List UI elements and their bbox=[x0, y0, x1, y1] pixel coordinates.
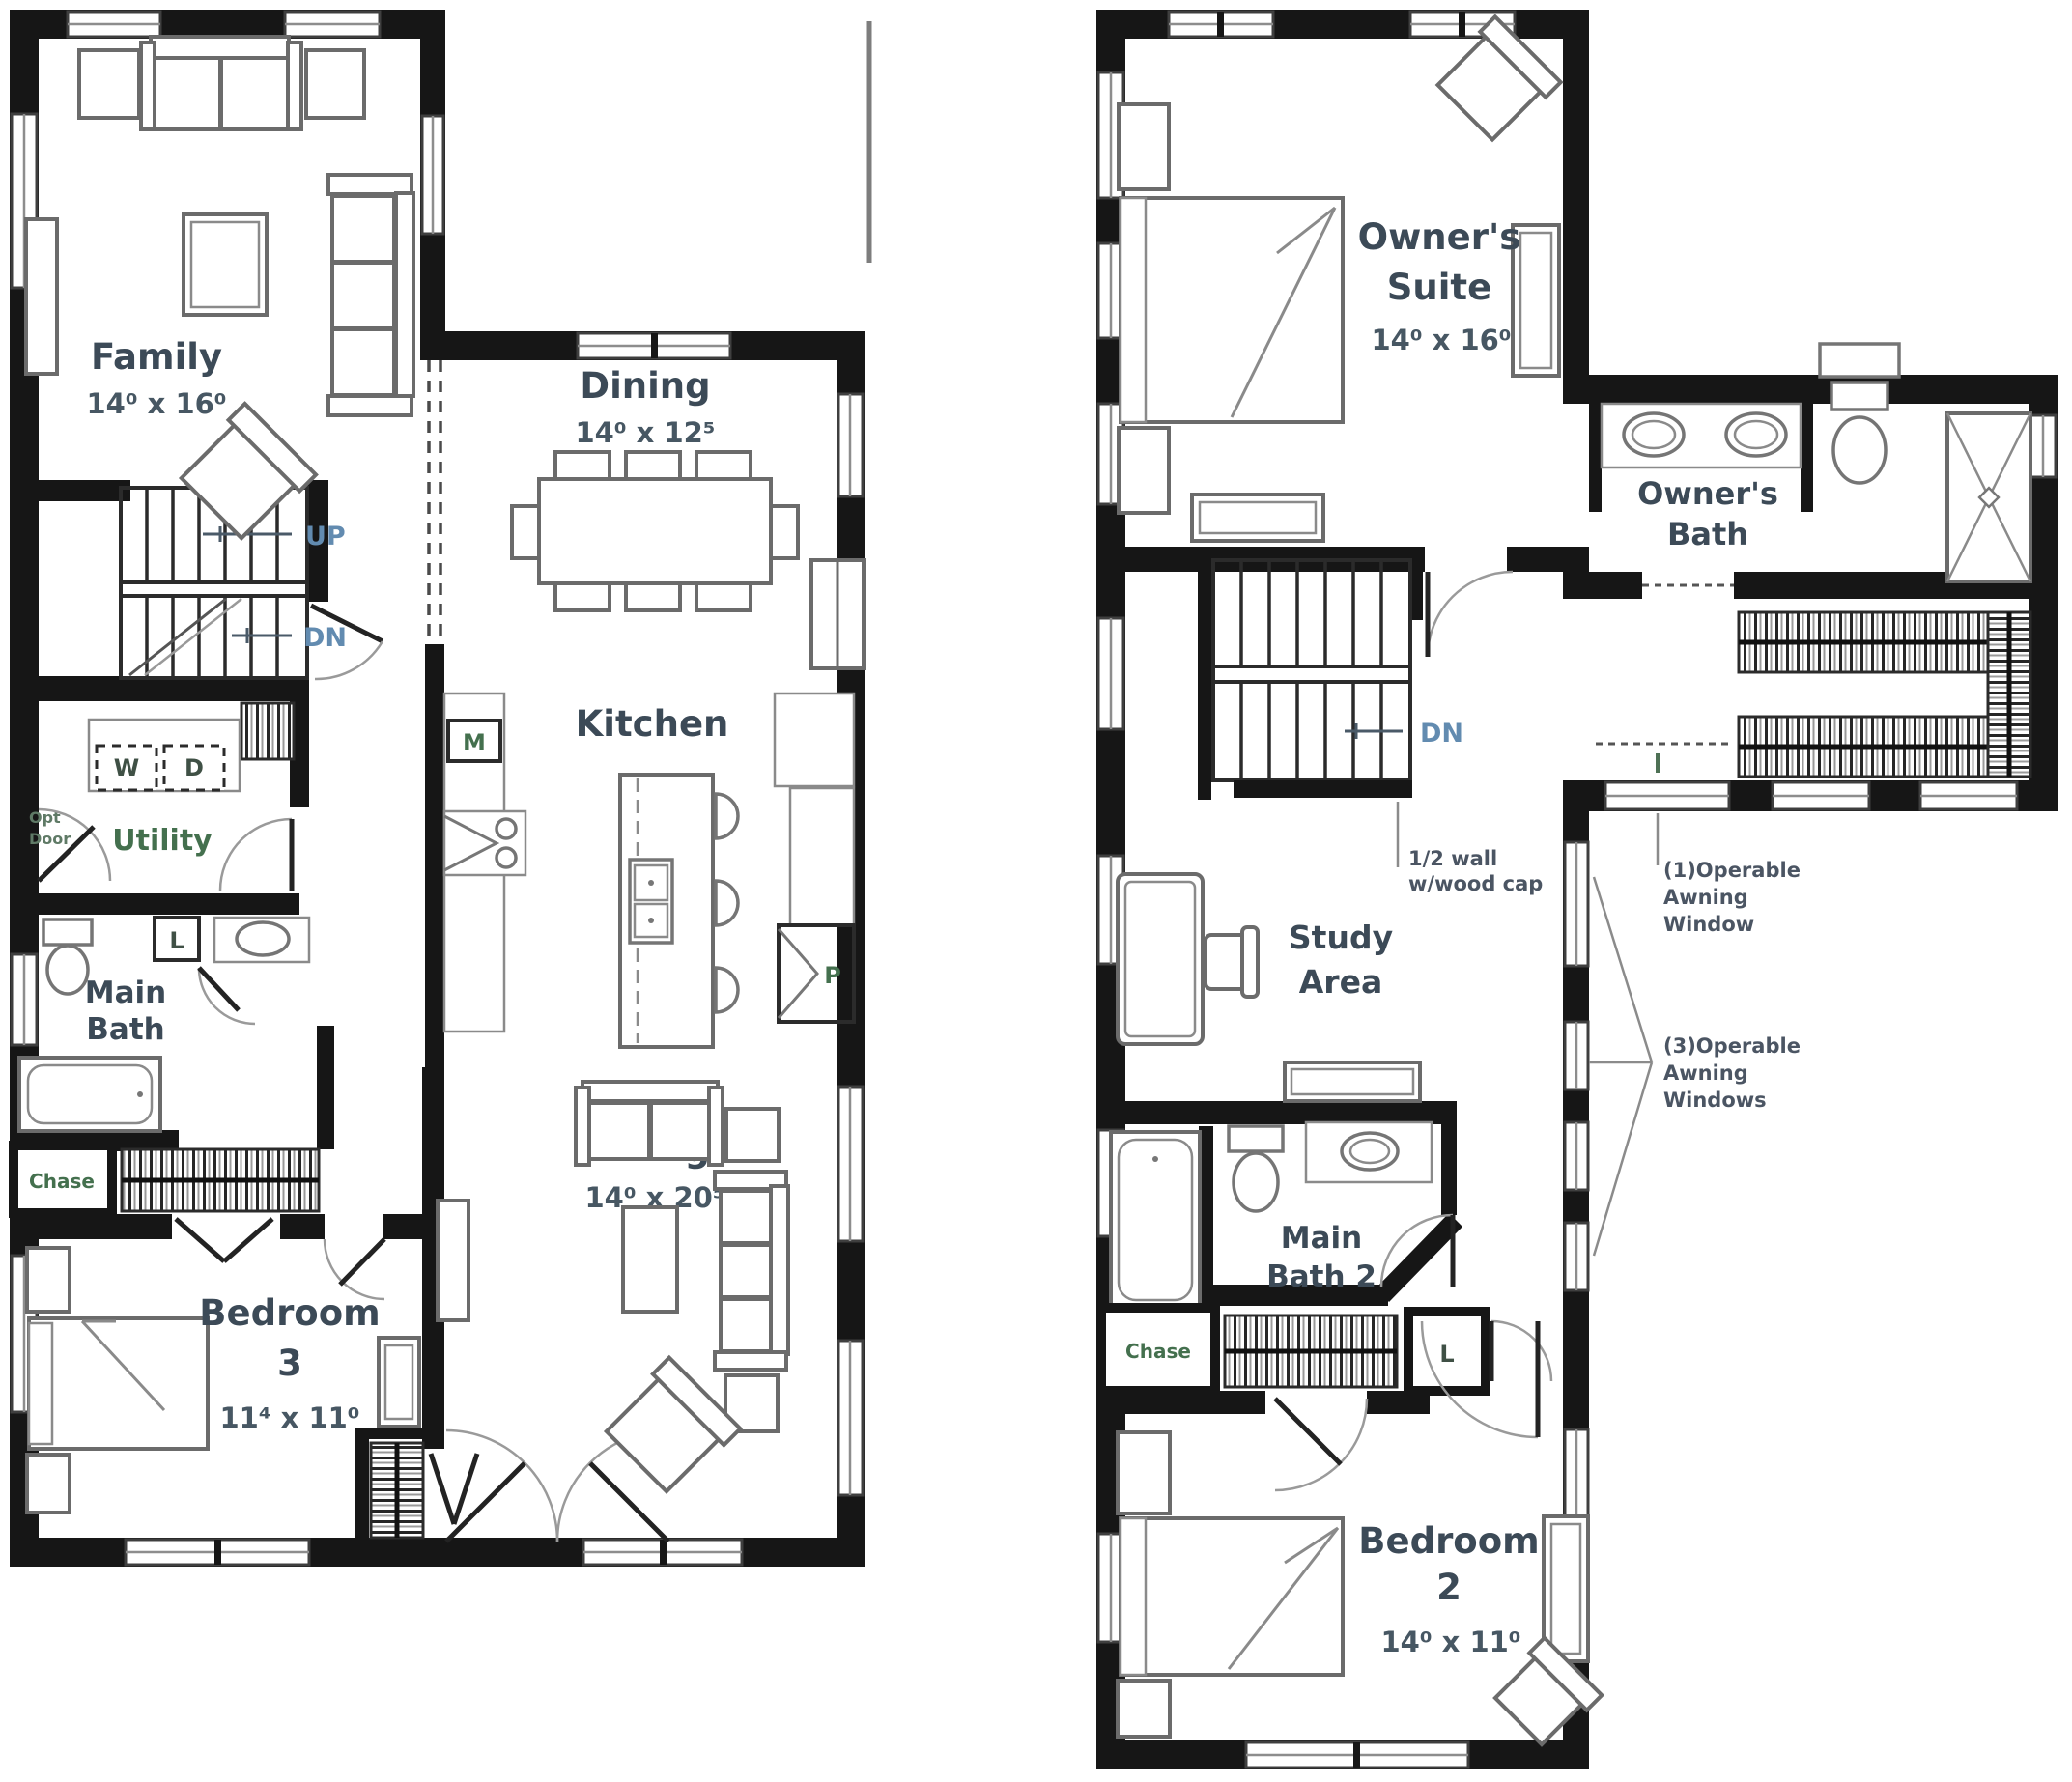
awning3-label-3: Windows bbox=[1663, 1089, 1767, 1112]
utility-label: Utility bbox=[112, 824, 213, 858]
console bbox=[1192, 495, 1323, 541]
kitchen-label: Kitchen bbox=[576, 703, 729, 745]
bathtub-2 bbox=[1111, 1132, 1200, 1308]
sofa-2 bbox=[328, 175, 413, 415]
awning3-label-1: (3)Operable bbox=[1663, 1034, 1801, 1058]
kitchen-counter-right bbox=[775, 693, 854, 786]
nightstand bbox=[1118, 1432, 1170, 1513]
closet-rod-bottom bbox=[1739, 717, 1998, 777]
closet-rod-top bbox=[1739, 612, 1998, 672]
owners-bath-label-1: Owner's bbox=[1637, 475, 1778, 512]
end-table bbox=[726, 1109, 779, 1161]
understair-chase bbox=[241, 703, 294, 759]
bedroom3-label-1: Bedroom bbox=[199, 1292, 380, 1334]
bedroom2-dims: 14⁰ x 11⁰ bbox=[1380, 1626, 1520, 1658]
sofa bbox=[141, 37, 301, 129]
awning1-annotation: (1)Operable Awning Window bbox=[1658, 813, 1801, 936]
stair-dn-label: DN bbox=[303, 623, 347, 653]
half-wall-annotation: 1/2 wall w/wood cap bbox=[1398, 802, 1543, 895]
dresser-3 bbox=[1544, 1516, 1588, 1661]
suite-door bbox=[1428, 572, 1513, 657]
bedroom3-bifold bbox=[176, 1219, 272, 1261]
toilet-bowl bbox=[47, 946, 88, 994]
linen2-label: L bbox=[1439, 1341, 1454, 1368]
linen2-door bbox=[1491, 1321, 1551, 1381]
utility-door bbox=[220, 819, 292, 891]
dryer-label: D bbox=[184, 754, 204, 781]
ottoman bbox=[184, 214, 267, 315]
floor-plan-drawing: UP DN W D Utility Opt Door bbox=[0, 0, 2072, 1782]
bath-door bbox=[199, 968, 255, 1024]
chase-strip: Chase bbox=[14, 1146, 319, 1213]
armchair-2 bbox=[601, 1358, 740, 1497]
pantry-label: P bbox=[824, 962, 841, 989]
study-label-1: Study bbox=[1289, 919, 1393, 956]
bed bbox=[29, 1318, 208, 1449]
chase2-label: Chase bbox=[1125, 1340, 1191, 1363]
dining-room: Dining 14⁰ x 12⁵ bbox=[512, 365, 798, 610]
washer-label: W bbox=[114, 754, 139, 781]
vanity-2 bbox=[1306, 1122, 1432, 1182]
island-stools bbox=[716, 794, 738, 1012]
awning1-label-1: (1)Operable bbox=[1663, 859, 1801, 882]
bedroom2-label-2: 2 bbox=[1436, 1567, 1462, 1608]
stair-up-label: UP bbox=[305, 522, 346, 552]
main-bath: L Main Bath bbox=[19, 918, 309, 1131]
dresser bbox=[379, 1338, 419, 1427]
bed-2 bbox=[1121, 1518, 1343, 1675]
awning1-label-2: Awning bbox=[1663, 886, 1748, 909]
closet-rod-end bbox=[1988, 612, 2030, 777]
dining-dims: 14⁰ x 12⁵ bbox=[575, 416, 715, 449]
family-room: Family 14⁰ x 16⁰ bbox=[26, 37, 413, 544]
nightstand bbox=[1119, 104, 1169, 189]
kitchen-counter-right-2 bbox=[790, 788, 854, 925]
owners-bath-label-2: Bath bbox=[1667, 516, 1748, 552]
owners-suite-label-1: Owner's bbox=[1358, 216, 1521, 258]
bedroom3-dims: 11⁴ x 11⁰ bbox=[219, 1401, 359, 1434]
living-room: Living 14⁰ x 20⁵ bbox=[438, 1082, 788, 1497]
closet2-door bbox=[1275, 1399, 1367, 1490]
sink bbox=[237, 922, 289, 955]
armchair bbox=[176, 404, 316, 544]
floor-plan-page: UP DN W D Utility Opt Door bbox=[0, 0, 2072, 1782]
tv-console bbox=[438, 1201, 468, 1320]
floor1-plan: UP DN W D Utility Opt Door bbox=[10, 10, 869, 1567]
microwave-label: M bbox=[463, 729, 486, 756]
awning3-label-2: Awning bbox=[1663, 1061, 1748, 1085]
main-bath2-label-1: Main bbox=[1281, 1221, 1362, 1256]
chase-label: Chase bbox=[29, 1170, 95, 1193]
walk-in-closet bbox=[1596, 612, 2030, 777]
linen-label: L bbox=[169, 927, 184, 954]
main-bath2-label-2: Bath 2 bbox=[1266, 1259, 1377, 1294]
shower bbox=[1947, 413, 2030, 581]
refrigerator bbox=[811, 560, 864, 668]
nightstand bbox=[27, 1455, 70, 1513]
loveseat bbox=[576, 1082, 723, 1165]
end-table bbox=[306, 50, 364, 118]
opt-door-label-2: Door bbox=[29, 830, 71, 848]
owners-suite-dims: 14⁰ x 16⁰ bbox=[1371, 324, 1511, 356]
toilet-3 bbox=[1229, 1126, 1283, 1211]
bathtub bbox=[19, 1058, 160, 1131]
desk bbox=[1118, 874, 1203, 1044]
main-bath-label-1: Main bbox=[85, 976, 166, 1010]
media-cabinet bbox=[26, 219, 57, 374]
study-label-2: Area bbox=[1299, 963, 1382, 1001]
bedroom2-label-1: Bedroom bbox=[1358, 1520, 1539, 1562]
toilet-tank bbox=[43, 919, 92, 945]
owners-suite-label-2: Suite bbox=[1387, 267, 1491, 308]
bedroom3-label-2: 3 bbox=[277, 1343, 302, 1384]
bedroom3-door bbox=[325, 1239, 384, 1299]
nightstand bbox=[27, 1248, 70, 1312]
awning1-label-3: Window bbox=[1663, 913, 1754, 936]
toilet-2 bbox=[1820, 344, 1899, 483]
stair2-dn-label: DN bbox=[1420, 719, 1463, 749]
family-label: Family bbox=[91, 336, 222, 378]
main-bath-label-2: Bath bbox=[86, 1012, 164, 1047]
coffee-table bbox=[623, 1207, 677, 1312]
bed-owners bbox=[1121, 198, 1343, 422]
kitchen-island bbox=[620, 775, 713, 1047]
floor2-plan: Owner's Suite 14⁰ x 16⁰ bbox=[1096, 10, 2058, 1769]
kitchen: Kitchen M bbox=[444, 560, 864, 1047]
console-table bbox=[1285, 1062, 1420, 1101]
end-table bbox=[79, 50, 139, 118]
family-dims: 14⁰ x 16⁰ bbox=[86, 387, 226, 420]
closet-rod-2 bbox=[1225, 1315, 1397, 1387]
sofa-3 bbox=[715, 1172, 788, 1370]
nightstand bbox=[1119, 428, 1169, 513]
double-vanity bbox=[1602, 404, 1801, 467]
bedroom2: Bedroom 2 14⁰ x 11⁰ bbox=[1118, 1432, 1602, 1750]
nightstand bbox=[1118, 1681, 1170, 1737]
desk-chair bbox=[1206, 927, 1258, 997]
closet-rod bbox=[122, 1149, 319, 1211]
dining-table bbox=[512, 452, 798, 610]
dining-label: Dining bbox=[580, 365, 710, 407]
study-area: Study Area bbox=[1118, 874, 1420, 1101]
half-wall-label-2: w/wood cap bbox=[1408, 872, 1543, 895]
half-wall-label-1: 1/2 wall bbox=[1408, 847, 1497, 870]
range bbox=[444, 811, 525, 875]
